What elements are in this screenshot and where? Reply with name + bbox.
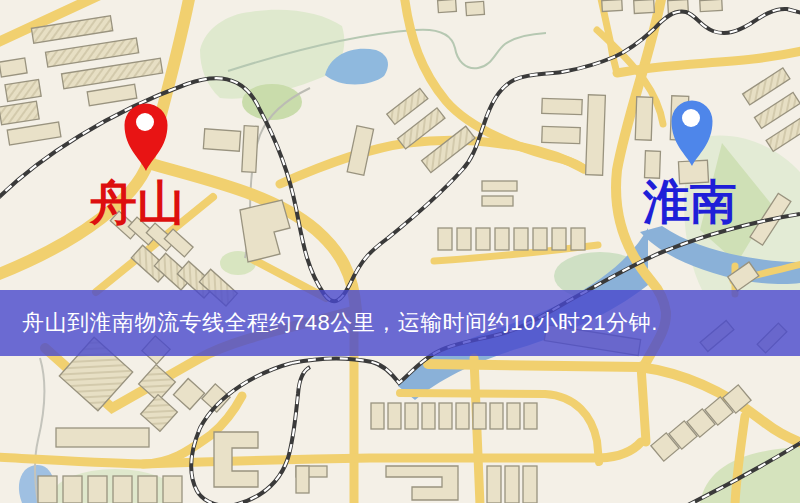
blue-map-pin-hole bbox=[682, 109, 700, 127]
origin-label: 舟山 bbox=[89, 176, 184, 229]
destination-label: 淮南 bbox=[642, 175, 737, 228]
route-info-text: 舟山到淮南物流专线全程约748公里，运输时间约10小时21分钟. bbox=[22, 308, 658, 338]
map-canvas[interactable]: 舟山 淮南 bbox=[0, 0, 800, 503]
red-map-pin-hole bbox=[136, 113, 154, 131]
logistics-route-map-image: 舟山 淮南 舟山到淮南物流专线全程约748公里，运输时间约10小时21分钟. bbox=[0, 0, 800, 503]
route-info-banner: 舟山到淮南物流专线全程约748公里，运输时间约10小时21分钟. bbox=[0, 290, 800, 356]
